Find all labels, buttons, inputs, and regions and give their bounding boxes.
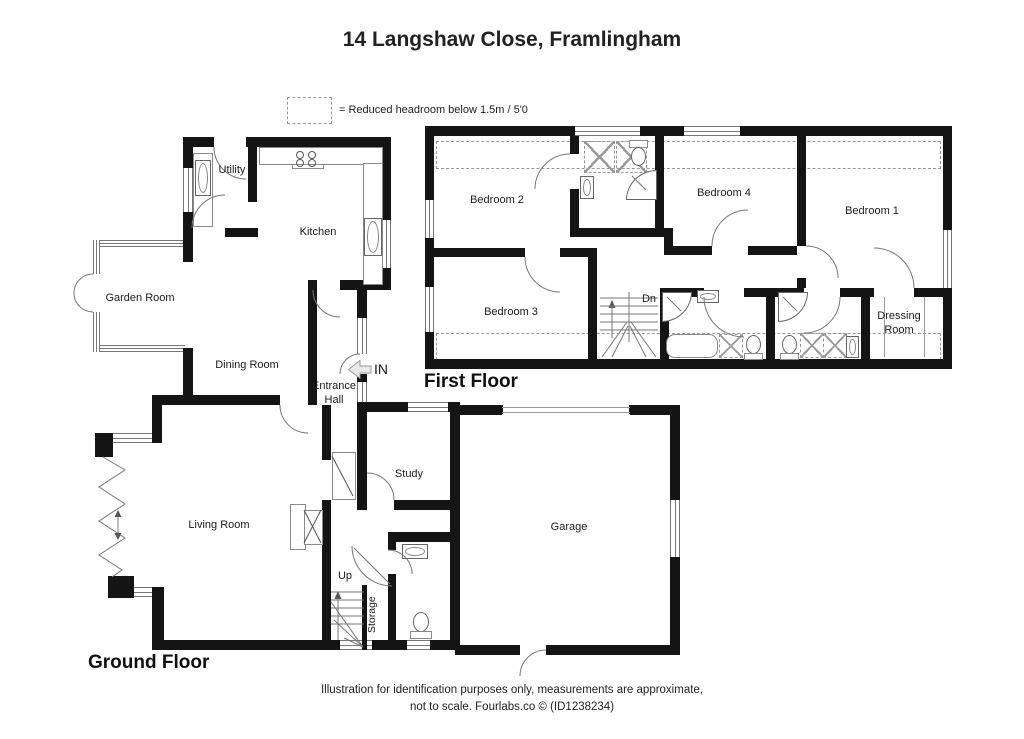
entrance-arrow-icon bbox=[349, 361, 372, 379]
direction-arrows bbox=[115, 300, 616, 599]
room-label-storage: Storage bbox=[366, 586, 386, 644]
door-swing-arcs bbox=[74, 147, 914, 676]
disclaimer-line-1: Illustration for identification purposes… bbox=[0, 684, 1024, 696]
page-title: 14 Langshaw Close, Framlingham bbox=[0, 28, 1024, 52]
floorplan-page: 14 Langshaw Close, Framlingham = Reduced… bbox=[0, 0, 1024, 739]
room-label-bedroom-1: Bedroom 1 bbox=[822, 205, 922, 219]
stairs-down-label: Dn bbox=[636, 293, 662, 307]
fireplace-cross bbox=[304, 456, 353, 543]
room-label-dressing-room: Dressing Room bbox=[867, 310, 931, 338]
room-label-garden-room: Garden Room bbox=[95, 292, 185, 306]
room-label-utility: Utility bbox=[202, 164, 262, 178]
room-label-bedroom-3: Bedroom 3 bbox=[461, 306, 561, 320]
room-label-bedroom-4: Bedroom 4 bbox=[674, 187, 774, 201]
room-label-kitchen: Kitchen bbox=[283, 226, 353, 240]
legend-text: = Reduced headroom below 1.5m / 5'0 bbox=[339, 104, 528, 116]
room-label-bedroom-2: Bedroom 2 bbox=[447, 194, 547, 208]
room-label-entrance-hall: Entrance Hall bbox=[302, 380, 366, 408]
room-label-study: Study bbox=[379, 468, 439, 482]
stairs-ground bbox=[331, 592, 364, 647]
ground-floor-label: Ground Floor bbox=[88, 652, 209, 674]
room-label-dining-room: Dining Room bbox=[202, 359, 292, 373]
room-label-living-room: Living Room bbox=[169, 519, 269, 533]
entrance-in-label: IN bbox=[374, 361, 400, 379]
stairs-up-label: Up bbox=[333, 570, 357, 584]
disclaimer-line-2: not to scale. Fourlabs.co © (ID1238234) bbox=[0, 701, 1024, 713]
room-label-garage: Garage bbox=[529, 521, 609, 535]
first-floor-label: First Floor bbox=[424, 371, 518, 393]
